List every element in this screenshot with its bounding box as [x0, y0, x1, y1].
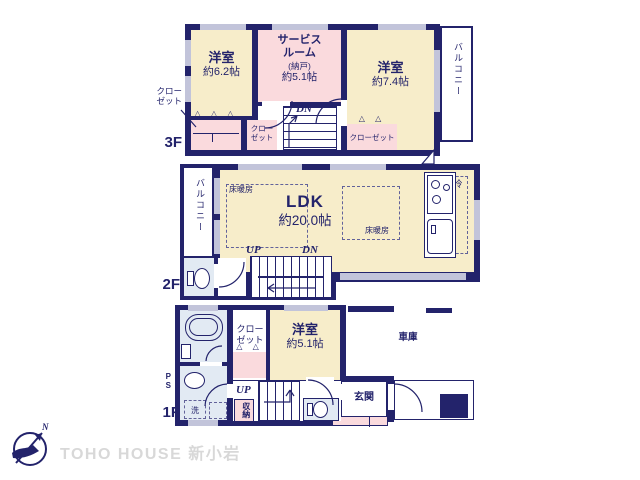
- toilet-bowl: [194, 268, 210, 289]
- window: [200, 24, 246, 30]
- stairs-2f-divider: [258, 276, 324, 278]
- window: [188, 305, 218, 311]
- closet-right-3f: クローゼット: [347, 124, 397, 150]
- room-size: 約5.1帖: [270, 338, 340, 351]
- balcony-3f: バルコニー: [440, 26, 473, 142]
- room-size: 約7.4帖: [347, 76, 434, 89]
- window: [238, 164, 302, 170]
- stairs-1f: [258, 381, 300, 421]
- storage-1f: 収納: [234, 399, 254, 422]
- window: [340, 273, 466, 280]
- window: [185, 76, 191, 102]
- window: [434, 50, 440, 112]
- garage-wall-segment: [348, 306, 394, 312]
- stairs-up-2f-label: UP: [246, 244, 276, 256]
- closet-1f-label: クロー ゼット: [232, 324, 268, 346]
- laundry-label: 洗: [185, 406, 205, 416]
- room-size: 約5.1帖: [258, 71, 341, 84]
- stove: [427, 175, 453, 214]
- hall-2f: [218, 258, 246, 296]
- bath-counter: [181, 344, 191, 359]
- stove-burner: [432, 195, 441, 204]
- door-opening: [227, 384, 233, 398]
- room-label-bedroom-1f: 洋室 約5.1帖: [270, 322, 340, 351]
- balcony-2f-label: バルコニー: [194, 178, 205, 233]
- closet-right-3f-label: クローゼット: [347, 133, 397, 142]
- entrance-label: 玄関: [344, 392, 384, 404]
- toilet-bowl: [313, 401, 328, 418]
- toilet-tank: [187, 271, 194, 286]
- window: [188, 420, 218, 426]
- balcony-2f: バルコニー: [182, 166, 214, 258]
- window: [214, 178, 220, 214]
- room-label-bedroom1-3f: 洋室 約6.2帖: [191, 50, 252, 79]
- laundry-space-2: [209, 402, 227, 419]
- hanger-marks: △ △ △: [191, 110, 241, 118]
- storage-1f-label: 収納: [241, 402, 251, 418]
- room-size: 約20.0帖: [240, 213, 370, 229]
- room-name: LDK: [240, 192, 370, 213]
- ps-label: PS: [163, 372, 173, 390]
- hanger-marks: △ △: [347, 115, 397, 123]
- floor-label-3f: 3F: [150, 134, 182, 152]
- closet-small-3f-label: クロー ゼット: [247, 124, 277, 142]
- window: [330, 164, 386, 170]
- door-opening: [214, 264, 218, 288]
- compass-north-label: N: [42, 422, 49, 432]
- porch-divider: [369, 417, 370, 427]
- floorplan-canvas: バルコニー △ △ △ クロー ゼット クローゼット △ △ 洋室 約6.2帖 …: [0, 0, 640, 480]
- closet-long-3f: [191, 120, 241, 150]
- room-label-bedroom2-3f: 洋室 約7.4帖: [347, 60, 434, 89]
- bathtub-inner: [189, 318, 218, 336]
- garage-label: 車庫: [388, 332, 428, 344]
- floor-label-1f: 1F: [148, 404, 180, 422]
- sink-faucet: [431, 225, 436, 234]
- stairs-dn-3f-label: DN: [296, 103, 336, 115]
- room-name: 洋室: [347, 60, 434, 76]
- balcony-3f-label: バルコニー: [452, 42, 463, 97]
- stove-burner: [443, 184, 450, 191]
- garage-wall-segment: [426, 308, 452, 313]
- window: [378, 24, 426, 30]
- closet-callout-3f: クロー ゼット: [146, 86, 182, 107]
- closet-1f: [233, 352, 266, 378]
- room-label-service-3f: サービス ルーム (納戸) 約5.1帖: [258, 34, 341, 84]
- door-opening: [306, 377, 334, 384]
- floor-label-2f: 2F: [148, 276, 180, 294]
- window: [272, 24, 328, 30]
- stairs-up-1f-label: UP: [236, 384, 260, 396]
- door-opening: [388, 384, 394, 410]
- laundry-space: 洗: [184, 400, 206, 419]
- entrance-pillar: [440, 394, 468, 418]
- closet-shelf-tick: [212, 133, 213, 142]
- kitchen-sink: [427, 219, 453, 254]
- compass-icon: [10, 420, 60, 475]
- room-size: 約6.2帖: [191, 66, 252, 79]
- stairs-dn-2f-label: DN: [302, 244, 336, 256]
- room-name: 洋室: [191, 50, 252, 66]
- stove-burner: [431, 180, 440, 189]
- watermark: TOHO HOUSE 新小岩: [60, 440, 480, 464]
- window: [214, 220, 220, 254]
- closet-small-3f: クロー ゼット: [247, 120, 277, 150]
- room-name: サービス ルーム: [258, 34, 341, 61]
- door-opening: [200, 362, 222, 366]
- room-label-ldk: LDK 約20.0帖: [240, 192, 370, 229]
- window: [284, 305, 328, 311]
- closet-shelf-line: [193, 133, 239, 134]
- window: [474, 200, 480, 240]
- bathtub: [185, 314, 223, 341]
- washbasin: [184, 372, 205, 389]
- room-name: 洋室: [270, 322, 340, 338]
- room-sub: (納戸): [258, 61, 341, 71]
